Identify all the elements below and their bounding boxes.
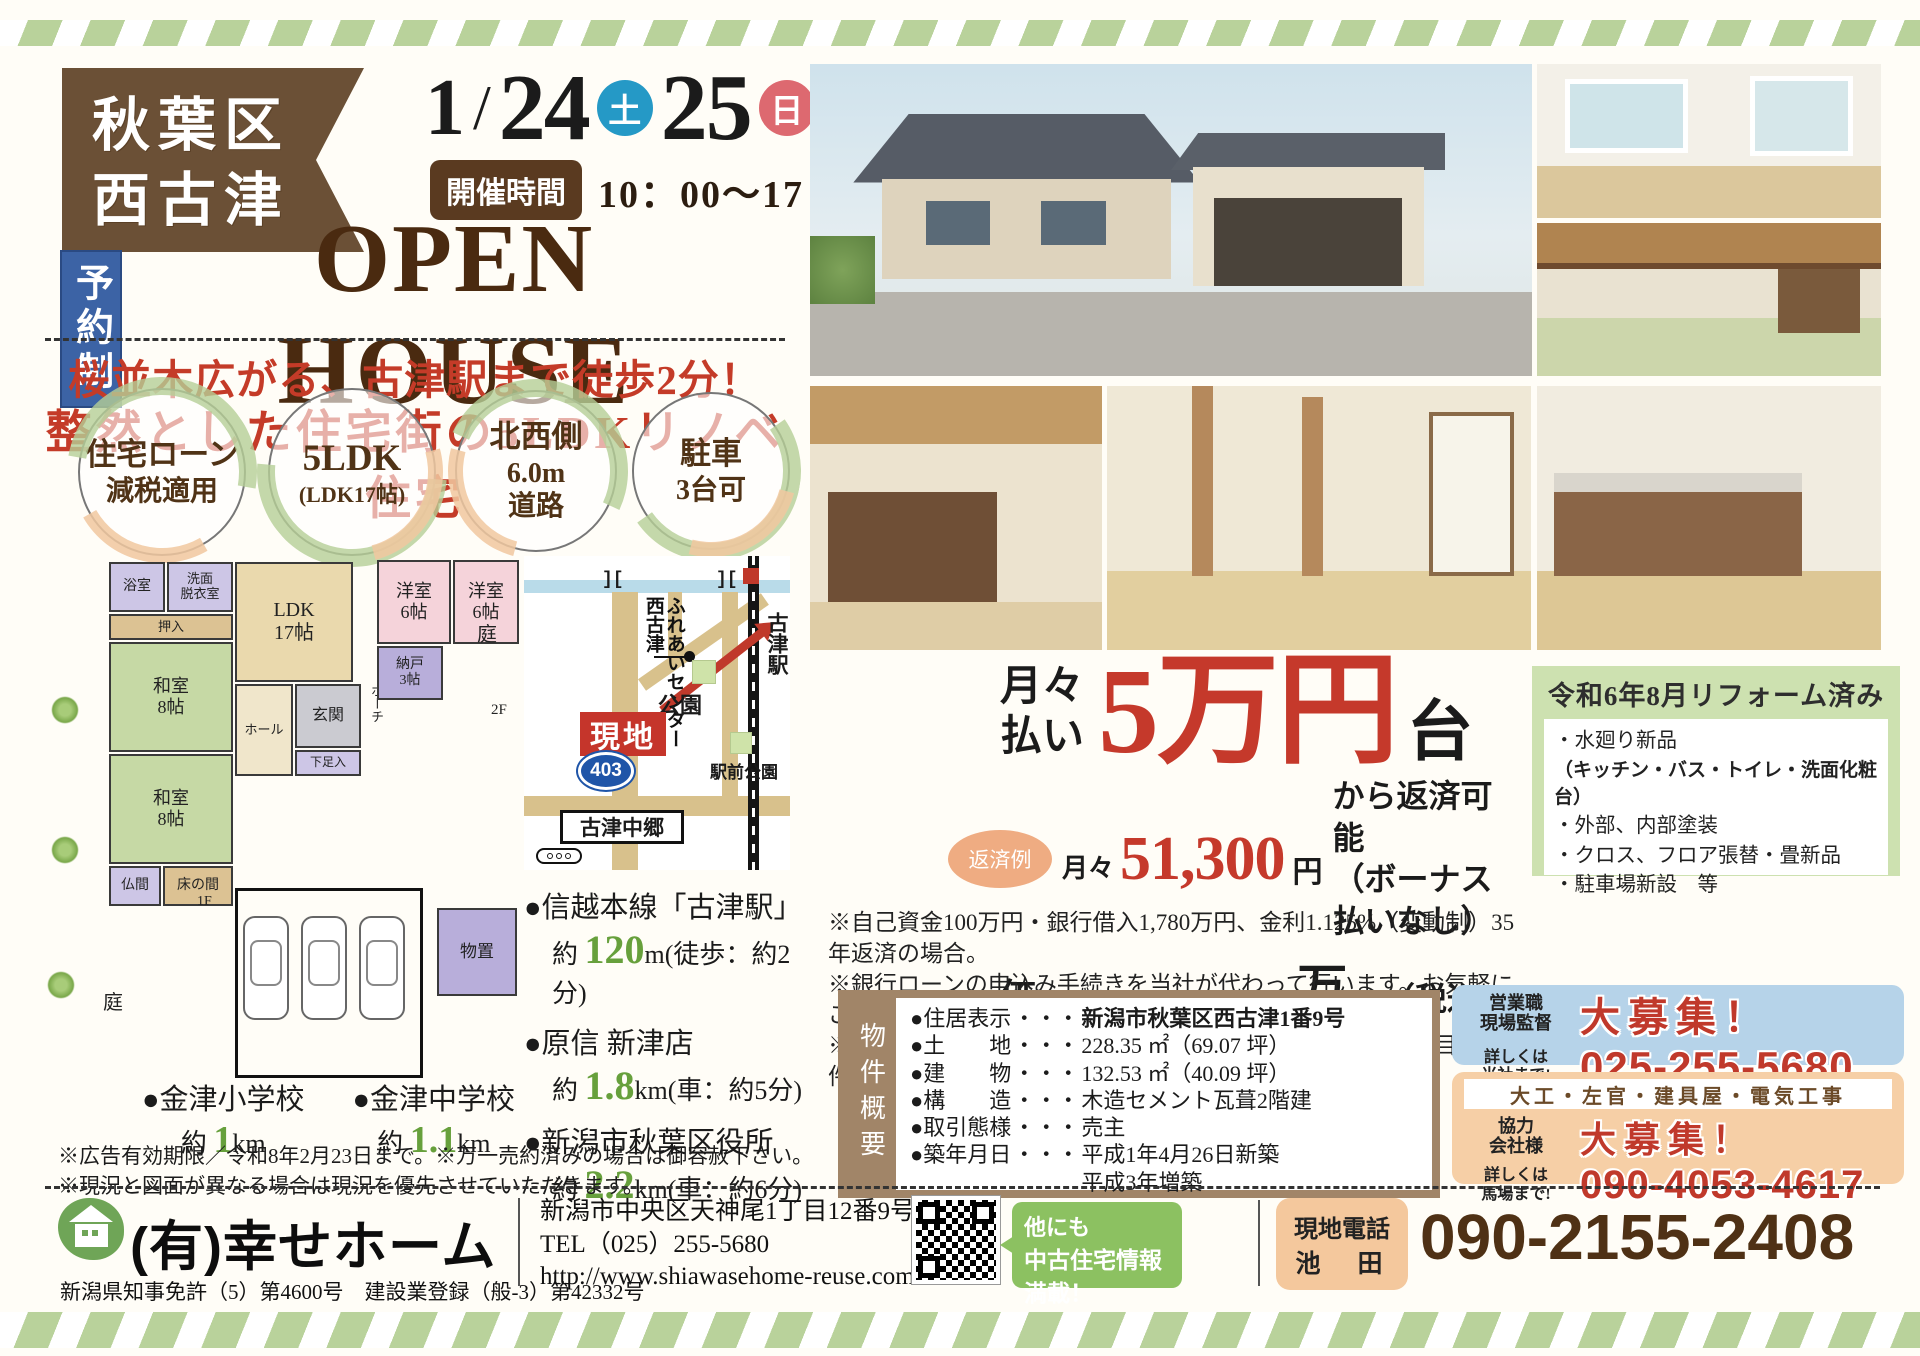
feature-line: 北西側 bbox=[490, 418, 583, 457]
room-hall: ホール bbox=[235, 684, 293, 776]
site-marker: 現地 bbox=[580, 712, 666, 756]
access-distance: 1.8 bbox=[585, 1063, 635, 1108]
room-bath: 浴室 bbox=[109, 562, 165, 612]
railroad-crossing-icon bbox=[536, 848, 582, 864]
bubble-line2: 中古住宅情報満載！ bbox=[1024, 1244, 1170, 1311]
access-map: ][ ][ 西古津 ふれあいセンター 公園 現地 403 古津駅 駅前公園 古津… bbox=[524, 556, 790, 870]
company-url[interactable]: http://www.shiawasehome-reuse.com bbox=[540, 1263, 915, 1290]
date-slash: / bbox=[473, 71, 491, 145]
openhouse-flyer: 秋葉区 西古津 1 / 24 土 25 日 開催時間 10：00～17：00 予… bbox=[0, 0, 1920, 1356]
property-table: ●住居表示・・・新潟市秋葉区西古津1番9号 ●土 地・・・228.35 ㎡（69… bbox=[896, 998, 1432, 1190]
photo-exterior bbox=[810, 64, 1532, 376]
school-name: ●金津小学校 bbox=[142, 1076, 305, 1118]
feature-5ldk: 5LDK (LDK17帖) bbox=[268, 388, 436, 556]
car-icon bbox=[359, 916, 405, 1020]
feature-road: 北西側 6.0m 道路 bbox=[455, 390, 617, 552]
tree-icon bbox=[47, 971, 75, 999]
footer-divider bbox=[45, 1186, 1880, 1189]
room-butsuma: 仏間 bbox=[109, 866, 161, 906]
reform-item: ・駐車場新設 等 bbox=[1554, 871, 1878, 901]
room-genkan: 玄関 bbox=[295, 684, 361, 748]
top-stripe-border bbox=[0, 20, 1920, 46]
recruit-partner-box: 大工・左官・建具屋・電気工事 協力 会社様 大募集！ 詳しくは 馬場まで! 09… bbox=[1452, 1072, 1904, 1184]
feature-parking: 駐車 3台可 bbox=[632, 392, 790, 550]
date-month: 1 bbox=[425, 63, 465, 154]
reform-box: 令和6年8月リフォーム済み ・水廻り新品 （キッチン・バス・トイレ・洗面化粧台）… bbox=[1532, 666, 1900, 876]
disclaimer-line1: ※広告有効期限／令和8年2月23日まで。※万一売約済みの場合は御容赦下さい。 bbox=[58, 1140, 813, 1170]
room-washitsu-1: 和室 8帖 bbox=[109, 642, 233, 752]
room-shoe-box: 下足入 bbox=[295, 750, 361, 776]
map-park-block bbox=[730, 732, 752, 754]
company-tel: TEL（025）255-5680 bbox=[540, 1229, 915, 1262]
recruit-headline: 大募集！ bbox=[1580, 985, 1904, 1043]
map-park-block bbox=[692, 660, 716, 684]
bridge-icon: ][ bbox=[602, 570, 624, 590]
map-pointer-line bbox=[654, 656, 686, 658]
access-item-name: ●原信 新津店 bbox=[524, 1020, 804, 1062]
car-icon bbox=[243, 916, 289, 1020]
example-prefix: 月々 bbox=[1062, 848, 1114, 885]
reform-title: 令和6年8月リフォーム済み bbox=[1544, 674, 1888, 713]
room-washroom: 洗面 脱衣室 bbox=[167, 562, 233, 612]
photo-western-room bbox=[1537, 64, 1881, 218]
property-row: ●土 地・・・228.35 ㎡（69.07 坪） bbox=[910, 1032, 1418, 1059]
site-phone-box: 現地電話 池 田 bbox=[1276, 1198, 1408, 1290]
recruit-sales-box: 営業職 現場監督 大募集！ 詳しくは 当社まで! 025-255-5680 bbox=[1452, 985, 1904, 1065]
photo-interior-pillars bbox=[1107, 386, 1531, 650]
tree-icon bbox=[51, 836, 79, 864]
qr-code[interactable] bbox=[912, 1196, 1000, 1284]
bridge-icon: ][ bbox=[716, 570, 738, 590]
feature-line: (LDK17帖) bbox=[299, 482, 405, 508]
photo-interior-counter bbox=[810, 386, 1102, 650]
bottom-stripe-border bbox=[0, 1312, 1920, 1348]
loan-note: ※自己資金100万円・銀行借入1,780万円、金利1.125%（変動制）35年返… bbox=[828, 908, 1528, 970]
recruit-role: 営業職 現場監督 bbox=[1452, 994, 1580, 1034]
footer-separator bbox=[518, 1198, 520, 1286]
recruit-headline: 大募集！ bbox=[1580, 1111, 1904, 1163]
repayment-example-badge: 返済例 bbox=[948, 830, 1052, 888]
recruit-role: 協力 会社様 bbox=[1452, 1117, 1580, 1157]
photo-kitchen bbox=[1537, 386, 1881, 650]
property-row: ●住居表示・・・新潟市秋葉区西古津1番9号 bbox=[910, 1005, 1418, 1032]
label-garden-2: 庭 bbox=[103, 986, 123, 1015]
railway-line bbox=[748, 556, 759, 870]
feature-loan-tax: 住宅ローン 減税適用 bbox=[78, 388, 246, 556]
label-garden-1: 庭 bbox=[477, 618, 497, 647]
reform-item: ・水廻り新品 bbox=[1554, 727, 1878, 757]
room-closet: 押入 bbox=[109, 614, 233, 640]
feature-line: 5LDK bbox=[303, 436, 402, 482]
bubble-line1: 他にも bbox=[1024, 1212, 1170, 1244]
label-2f: 2F bbox=[491, 702, 507, 719]
recruit-trades: 大工・左官・建具屋・電気工事 bbox=[1464, 1079, 1892, 1109]
example-unit: 円 bbox=[1293, 847, 1323, 891]
room-storage: 物置 bbox=[437, 908, 517, 996]
room-ldk: LDK 17帖 bbox=[235, 562, 353, 682]
property-row: ●建 物・・・132.53 ㎡（40.09 坪） bbox=[910, 1060, 1418, 1087]
monthly-big-suffix: 台 bbox=[1407, 678, 1473, 774]
site-phone-label: 現地電話 bbox=[1294, 1209, 1390, 1244]
access-distance: 120 bbox=[585, 927, 645, 972]
feature-line: 駐車 bbox=[680, 435, 742, 474]
saturday-badge: 土 bbox=[597, 80, 653, 136]
room-washitsu-2: 和室 8帖 bbox=[109, 754, 233, 864]
room-yoshitsu-1: 洋室 6帖 bbox=[377, 560, 451, 644]
example-amount: 51,300 bbox=[1120, 824, 1285, 895]
company-logo-icon bbox=[58, 1198, 124, 1260]
recruit-partner-grid: 協力 会社様 大募集！ 詳しくは 馬場まで! 090-4053-4617 bbox=[1452, 1111, 1904, 1183]
label-1f: 1F bbox=[197, 894, 212, 910]
site-phone-number: 090-2155-2408 bbox=[1420, 1200, 1854, 1274]
car-icon bbox=[301, 916, 347, 1020]
event-date: 1 / 24 土 25 日 bbox=[425, 58, 815, 158]
footer-separator bbox=[1258, 1200, 1260, 1286]
access-item-value: 約 1.8km(車：約5分) bbox=[524, 1062, 804, 1109]
reform-item: ・外部、内部塗装 bbox=[1554, 812, 1878, 842]
property-row: ●取引態様・・・売主 bbox=[910, 1114, 1418, 1141]
site-phone-contact-name: 池 田 bbox=[1295, 1244, 1388, 1280]
feature-line: 減税適用 bbox=[106, 475, 218, 509]
property-overview: 物件概要 ●住居表示・・・新潟市秋葉区西古津1番9号 ●土 地・・・228.35… bbox=[838, 990, 1440, 1198]
company-name: (有)幸せホーム bbox=[130, 1202, 496, 1281]
sunday-badge: 日 bbox=[759, 80, 815, 136]
school-name: ●金津中学校 bbox=[353, 1076, 516, 1118]
monthly-big-value: 5万円 bbox=[1098, 651, 1397, 773]
company-contact: 新潟市中央区天神尾1丁目12番9号 TEL（025）255-5680 http:… bbox=[540, 1196, 915, 1294]
room-nando: 納戸 3帖 bbox=[377, 646, 443, 700]
company-address: 新潟市中央区天神尾1丁目12番9号 bbox=[540, 1196, 915, 1229]
floor-plan: 浴室 洗面 脱衣室 押入 LDK 17帖 和室 8帖 和室 8帖 仏間 床の間 … bbox=[45, 556, 523, 1084]
map-label-station: 古津駅 bbox=[762, 612, 792, 675]
info-speech-bubble: 他にも 中古住宅情報満載！ bbox=[1012, 1202, 1182, 1288]
tree-icon bbox=[51, 696, 79, 724]
property-side-label: 物件概要 bbox=[846, 998, 896, 1190]
route-403-shield: 403 bbox=[578, 752, 634, 790]
reform-item: ・クロス、フロア張替・畳新品 bbox=[1554, 842, 1878, 872]
date-day2: 25 bbox=[661, 54, 751, 162]
feature-line: 住宅ローン bbox=[85, 436, 238, 475]
property-row: ●構 造・・・木造セメント瓦葺2階建 bbox=[910, 1087, 1418, 1114]
access-item-name: ●信越本線「古津駅」 bbox=[524, 884, 804, 926]
monthly-payment-row: 月々 払い 5万円 台 bbox=[1000, 650, 1520, 774]
reform-list: ・水廻り新品 （キッチン・バス・トイレ・洗面化粧台） ・外部、内部塗装 ・クロス… bbox=[1544, 719, 1888, 875]
map-label-station-park: 駅前公園 bbox=[710, 758, 778, 783]
feature-line: 6.0m 道路 bbox=[507, 457, 565, 524]
access-item-value: 約 120m(徒歩：約2分) bbox=[524, 926, 804, 1010]
date-day1: 24 bbox=[499, 54, 589, 162]
map-destination-marker bbox=[743, 568, 759, 584]
reform-item: （キッチン・バス・トイレ・洗面化粧台） bbox=[1554, 757, 1878, 812]
divider bbox=[45, 338, 785, 341]
photo-japanese-room bbox=[1537, 223, 1881, 376]
monthly-label: 月々 払い bbox=[1000, 662, 1084, 763]
area-line1: 秋葉区 bbox=[92, 88, 364, 163]
map-label-kozu-nakago: 古津中郷 bbox=[560, 810, 684, 844]
feature-line: 3台可 bbox=[676, 474, 746, 508]
